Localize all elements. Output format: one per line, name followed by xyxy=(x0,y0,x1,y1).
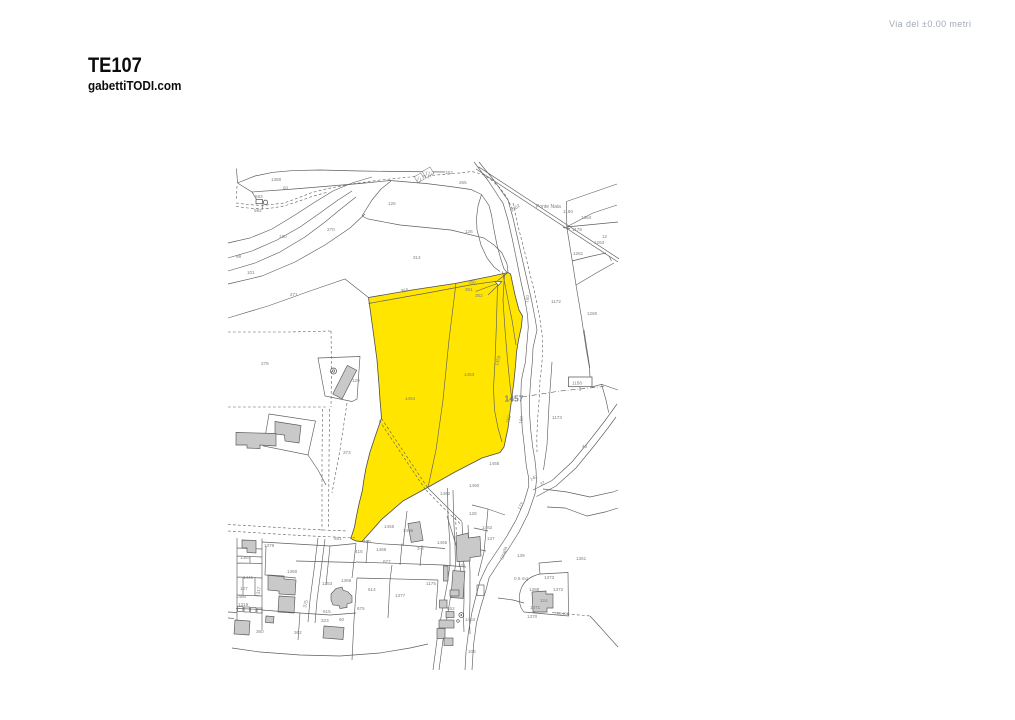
svg-text:593: 593 xyxy=(255,194,263,199)
svg-text:615: 615 xyxy=(323,609,331,614)
svg-text:43: 43 xyxy=(582,444,588,449)
svg-text:Ponte Naia: Ponte Naia xyxy=(536,204,561,210)
svg-text:1454: 1454 xyxy=(405,396,416,401)
svg-text:159: 159 xyxy=(505,414,512,423)
svg-text:278: 278 xyxy=(261,361,269,366)
svg-text:1173: 1173 xyxy=(552,415,562,420)
svg-text:126: 126 xyxy=(388,201,396,206)
svg-text:1457: 1457 xyxy=(505,394,524,404)
svg-text:1460: 1460 xyxy=(469,483,480,488)
svg-text:1368: 1368 xyxy=(341,578,352,583)
svg-text:362: 362 xyxy=(294,630,302,635)
svg-text:152: 152 xyxy=(445,170,453,175)
svg-text:614: 614 xyxy=(368,587,376,592)
svg-text:1361: 1361 xyxy=(576,556,587,561)
svg-text:3-3: 3-3 xyxy=(417,546,424,551)
svg-text:99: 99 xyxy=(236,254,242,259)
svg-text:Strada: Strada xyxy=(499,545,508,560)
svg-text:1388: 1388 xyxy=(529,587,540,592)
svg-text:1160: 1160 xyxy=(563,209,573,214)
svg-text:105: 105 xyxy=(468,649,476,654)
svg-text:314: 314 xyxy=(413,255,421,260)
svg-text:677: 677 xyxy=(383,559,391,564)
svg-text:1455: 1455 xyxy=(384,524,395,529)
svg-text:1354: 1354 xyxy=(581,215,592,220)
svg-text:1482: 1482 xyxy=(482,525,493,530)
svg-text:127: 127 xyxy=(240,586,248,591)
svg-text:1462: 1462 xyxy=(440,491,451,496)
svg-text:137: 137 xyxy=(487,536,495,541)
svg-text:37: 37 xyxy=(539,480,546,487)
svg-text:1261: 1261 xyxy=(573,251,584,256)
svg-text:675: 675 xyxy=(357,606,365,611)
svg-text:1379: 1379 xyxy=(264,543,275,548)
svg-text:1480: 1480 xyxy=(236,594,247,599)
svg-text:1373: 1373 xyxy=(544,575,555,580)
svg-text:1317: 1317 xyxy=(255,586,262,597)
svg-text:375: 375 xyxy=(302,599,309,608)
svg-text:1319: 1319 xyxy=(238,602,249,607)
svg-text:1352: 1352 xyxy=(510,203,522,213)
svg-text:351: 351 xyxy=(465,287,473,292)
svg-text:101: 101 xyxy=(247,270,255,275)
svg-text:271: 271 xyxy=(290,292,298,297)
svg-text:1458: 1458 xyxy=(489,461,500,466)
svg-text:350: 350 xyxy=(468,280,476,285)
svg-text:1178: 1178 xyxy=(572,227,582,232)
svg-text:1453: 1453 xyxy=(464,372,475,377)
svg-text:128: 128 xyxy=(469,511,477,516)
svg-text:1387: 1387 xyxy=(240,555,251,560)
svg-text:1466: 1466 xyxy=(403,528,414,533)
svg-text:160: 160 xyxy=(524,294,530,303)
svg-text:270: 270 xyxy=(327,227,335,232)
svg-text:373: 373 xyxy=(343,450,351,455)
svg-text:1380: 1380 xyxy=(271,177,282,182)
svg-text:60: 60 xyxy=(339,617,345,622)
svg-text:0.5 mq: 0.5 mq xyxy=(514,576,528,581)
svg-text:1441: 1441 xyxy=(243,575,254,580)
svg-text:652: 652 xyxy=(447,606,455,611)
svg-text:1263: 1263 xyxy=(594,240,605,245)
svg-text:1377: 1377 xyxy=(395,593,406,598)
svg-text:1465: 1465 xyxy=(437,540,448,545)
svg-text:1360: 1360 xyxy=(287,569,298,574)
svg-text:415: 415 xyxy=(355,549,363,554)
svg-text:12: 12 xyxy=(602,234,608,239)
svg-text:1464: 1464 xyxy=(465,617,476,622)
svg-text:142: 142 xyxy=(529,474,539,482)
svg-text:323: 323 xyxy=(321,618,329,623)
svg-text:129: 129 xyxy=(352,378,360,383)
svg-text:93: 93 xyxy=(283,186,289,191)
svg-text:139: 139 xyxy=(517,553,525,558)
svg-text:1353: 1353 xyxy=(322,581,333,586)
svg-text:130: 130 xyxy=(279,234,287,239)
svg-text:460: 460 xyxy=(363,539,371,544)
svg-text:160: 160 xyxy=(518,415,524,424)
svg-text:1371: 1371 xyxy=(530,605,541,610)
svg-text:124: 124 xyxy=(540,598,548,603)
svg-text:1468: 1468 xyxy=(376,547,387,552)
svg-text:1260: 1260 xyxy=(587,311,598,316)
svg-text:265: 265 xyxy=(459,180,467,185)
svg-text:121: 121 xyxy=(458,563,466,568)
svg-text:360: 360 xyxy=(256,629,264,634)
svg-text:1172: 1172 xyxy=(551,299,561,304)
svg-text:352: 352 xyxy=(475,293,483,298)
svg-text:1158: 1158 xyxy=(572,381,582,386)
svg-text:1370: 1370 xyxy=(527,614,538,619)
svg-text:1175: 1175 xyxy=(426,581,436,586)
svg-text:126: 126 xyxy=(465,229,473,234)
svg-text:651: 651 xyxy=(334,536,342,541)
svg-text:1372: 1372 xyxy=(553,587,564,592)
svg-text:325 mq: 325 mq xyxy=(554,611,570,616)
svg-text:592: 592 xyxy=(254,208,262,213)
